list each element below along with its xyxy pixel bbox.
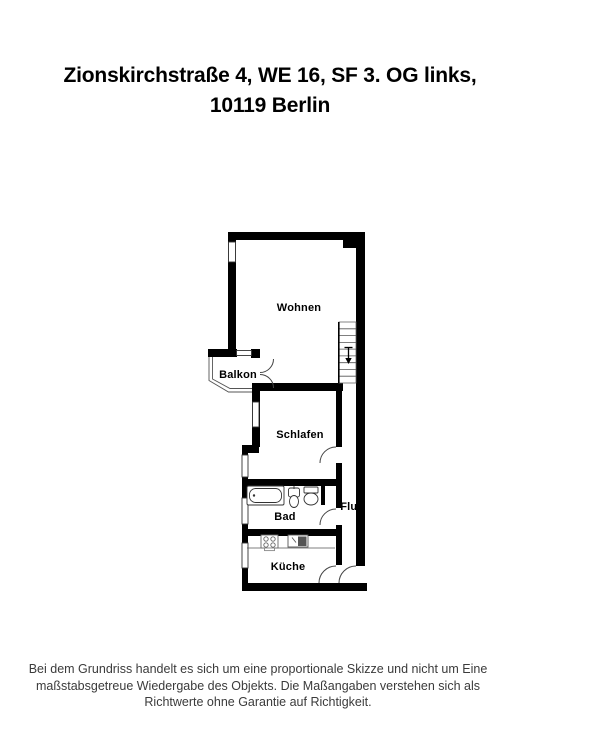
wall-top [228, 232, 343, 240]
room-label-balkon: Balkon [219, 369, 257, 381]
wall-schlafen-top [252, 383, 343, 391]
window-schlafen-lower [242, 455, 248, 477]
bathroom-fixtures [247, 486, 318, 508]
stairs-outline [339, 322, 356, 383]
staircase [339, 322, 356, 383]
window-balcony [237, 351, 252, 356]
entry-door-arc [339, 566, 356, 583]
window-schlafen-west [253, 402, 260, 427]
disclaimer-line-1: Bei dem Grundriss handelt es sich um ein… [0, 661, 516, 678]
room-label-schlafen: Schlafen [276, 429, 323, 441]
room-label-kueche: Küche [271, 561, 306, 573]
kitchen-fixtures [247, 535, 335, 551]
wall-bottom [242, 583, 367, 591]
room-label-wohnen: Wohnen [277, 302, 321, 314]
wall-schlafen-bad-divider [246, 479, 342, 486]
wall-balcony-pillar [251, 349, 260, 358]
wall-corridor-1 [336, 389, 342, 447]
floorplan-drawing [0, 0, 600, 750]
window-kueche [242, 543, 248, 568]
disclaimer-line-2: maßstabsgetreue Wiedergabe des Objekts. … [0, 678, 516, 695]
wall-bad-stub [321, 486, 325, 505]
bad-door-arc [320, 509, 336, 525]
wall-balcony-top [208, 349, 237, 357]
washbasin-icon [289, 486, 300, 508]
wall-corridor-3 [336, 525, 342, 565]
kueche-door-arc [319, 566, 336, 583]
disclaimer-text: Bei dem Grundriss handelt es sich um ein… [0, 661, 516, 711]
stove-icon [261, 535, 278, 551]
room-label-bad: Bad [274, 511, 295, 523]
schlafen-door-arc [320, 447, 336, 463]
balcony-door-arc-top [260, 359, 274, 373]
disclaimer-line-3: Richtwerte ohne Garantie auf Richtigkeit… [0, 694, 516, 711]
room-label-flur: Flur [340, 501, 362, 513]
walls [208, 232, 367, 591]
window-wohnen-west [229, 242, 236, 262]
bathtub-icon [247, 486, 284, 505]
wall-right [356, 239, 365, 566]
kitchen-sink-icon [288, 535, 308, 547]
toilet-icon [304, 487, 318, 505]
